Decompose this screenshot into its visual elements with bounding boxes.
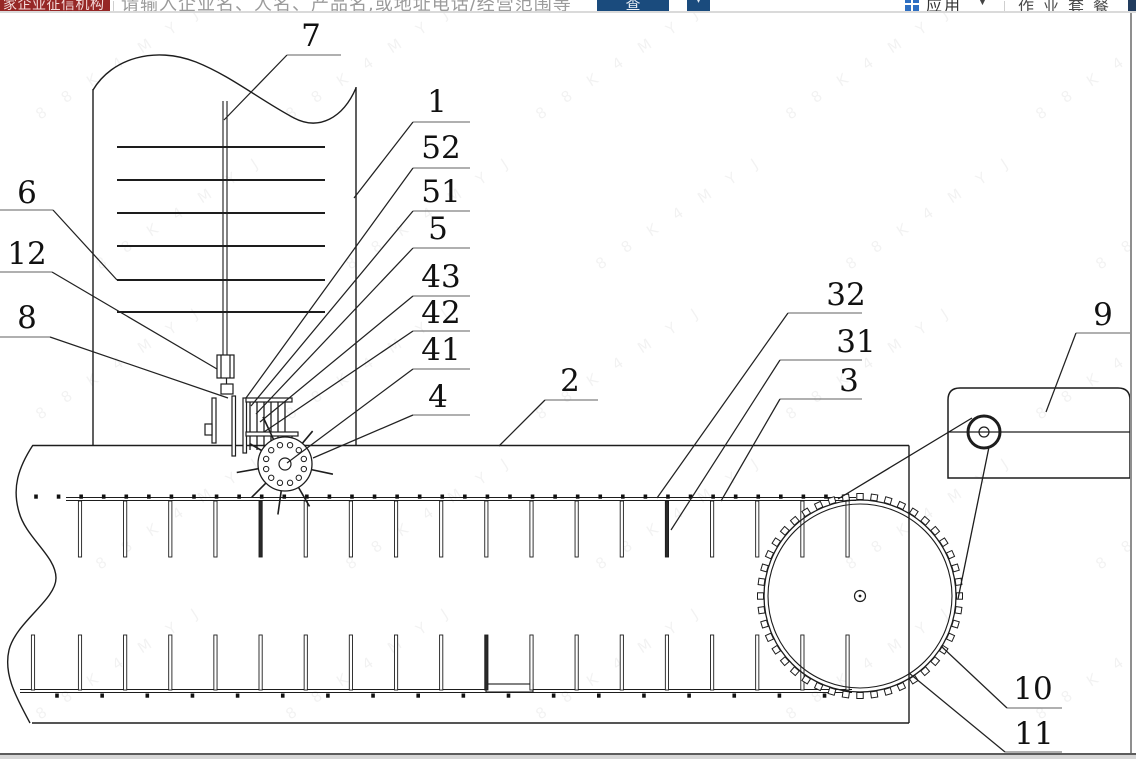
part-number: 41 bbox=[421, 332, 460, 368]
flight-bottom bbox=[349, 635, 352, 690]
chain-pin bbox=[552, 694, 556, 698]
label-leader-line bbox=[53, 210, 117, 280]
sprocket-tooth bbox=[931, 526, 940, 535]
sprocket-tooth bbox=[828, 497, 836, 505]
wheel-hole bbox=[287, 442, 292, 447]
chain-pin bbox=[553, 495, 557, 499]
apps-caret-icon: ▼ bbox=[979, 0, 986, 7]
flight-bottom bbox=[31, 635, 34, 690]
window-right-edge bbox=[1130, 13, 1132, 753]
part-number: 3 bbox=[839, 363, 859, 399]
chain-pin bbox=[507, 694, 511, 698]
sprocket-tooth bbox=[931, 657, 940, 666]
gate-plate-b bbox=[243, 398, 247, 453]
sprocket-tooth bbox=[871, 494, 878, 501]
search-button[interactable]: 查 bbox=[597, 0, 669, 11]
chain-pin bbox=[778, 694, 782, 698]
flight-top bbox=[124, 501, 127, 557]
watermark-text: 8 8 K 4 M Y J bbox=[1032, 301, 1136, 424]
chain-pin bbox=[191, 694, 195, 698]
chain-pin bbox=[373, 495, 377, 499]
flight-bottom bbox=[394, 635, 397, 690]
gate-plate-a bbox=[232, 396, 236, 456]
label-leader-line bbox=[657, 313, 788, 498]
flight-bottom bbox=[259, 635, 262, 690]
flight-bottom bbox=[214, 635, 217, 690]
patent-figure: 8 8 K 4 M Y J8 8 K 4 M Y J8 8 K 4 M Y J8… bbox=[0, 0, 1136, 759]
flight-bottom bbox=[485, 635, 488, 690]
flight-bottom bbox=[530, 635, 533, 690]
wheel-spike bbox=[302, 431, 312, 443]
wheel-spike bbox=[249, 444, 261, 451]
sprocket-tooth bbox=[857, 494, 863, 500]
sprocket-hub-dot bbox=[859, 595, 862, 598]
chain-pin bbox=[823, 694, 827, 698]
chain-pin bbox=[215, 495, 219, 499]
flight-top bbox=[485, 501, 488, 557]
sprocket-tooth bbox=[790, 516, 799, 525]
search-option-button[interactable]: ▾ bbox=[687, 0, 710, 11]
wheel-hole bbox=[296, 475, 301, 480]
watermark-text: 8 8 K 4 M Y J bbox=[32, 1, 208, 124]
part-number: 7 bbox=[301, 18, 321, 54]
toolbar-underline bbox=[0, 11, 1136, 13]
label-leader-line bbox=[909, 673, 1005, 752]
label-leader-line bbox=[499, 400, 545, 446]
belt-splice-plate bbox=[486, 684, 533, 692]
chain-pin bbox=[236, 694, 240, 698]
chain-pin bbox=[34, 495, 38, 499]
part-label-7: 7 bbox=[224, 18, 341, 120]
chain-pin bbox=[395, 495, 399, 499]
watermark-text: 8 8 K 4 M Y J bbox=[592, 151, 768, 274]
flight-bottom bbox=[756, 635, 759, 690]
wheel-hole bbox=[277, 442, 282, 447]
flight-top bbox=[665, 501, 668, 557]
chain-pin bbox=[644, 495, 648, 499]
sprocket-tooth bbox=[780, 526, 789, 535]
watermark-text: 8 8 K 4 M Y J bbox=[32, 601, 208, 724]
watermark-text: 8 8 K 4 M Y J bbox=[842, 151, 1018, 274]
part-number: 42 bbox=[421, 295, 460, 331]
chain-pin bbox=[531, 495, 535, 499]
wheel-hole bbox=[301, 466, 306, 471]
window-bottom-pad bbox=[0, 755, 1136, 759]
part-number: 1 bbox=[427, 84, 447, 120]
chain-pin bbox=[756, 495, 760, 499]
part-number: 2 bbox=[560, 363, 580, 399]
part-number: 8 bbox=[17, 300, 37, 336]
search-input[interactable]: 请输入企业名、人名、产品名,或地址电话/经营范围等 bbox=[121, 0, 572, 11]
flight-top bbox=[711, 501, 714, 557]
watermark-text: 8 8 K 4 M Y J bbox=[342, 451, 518, 574]
flight-top bbox=[169, 501, 172, 557]
drive-chain bbox=[958, 447, 989, 599]
part-number: 12 bbox=[7, 236, 46, 272]
sprocket-tooth bbox=[790, 667, 799, 676]
chain-pin bbox=[281, 694, 285, 698]
part-number: 51 bbox=[421, 174, 460, 210]
gate-knob bbox=[205, 424, 212, 435]
sprocket-tooth bbox=[780, 657, 789, 666]
flight-top bbox=[440, 501, 443, 557]
toolbar-divider bbox=[113, 1, 114, 11]
flight-top bbox=[394, 501, 397, 557]
chain-pin bbox=[282, 495, 286, 499]
flight-bottom bbox=[304, 635, 307, 690]
sprocket-tooth bbox=[857, 693, 863, 699]
gate-block-12 bbox=[217, 355, 234, 378]
shaft-coupling bbox=[221, 384, 233, 394]
chain-pin bbox=[55, 694, 59, 698]
sprocket-tooth bbox=[955, 607, 962, 614]
chain-pin bbox=[732, 694, 736, 698]
flight-top bbox=[756, 501, 759, 557]
flight-top bbox=[530, 501, 533, 557]
flight-bottom bbox=[169, 635, 172, 690]
watermark-text: 8 8 K 4 M Y J bbox=[1032, 1, 1136, 124]
wheel-hole bbox=[263, 456, 268, 461]
wheel-hole bbox=[263, 466, 268, 471]
wheel-spike bbox=[278, 491, 281, 515]
sprocket-tooth bbox=[758, 578, 765, 585]
chain-pin bbox=[418, 495, 422, 499]
chain-pin bbox=[350, 495, 354, 499]
flight-top bbox=[620, 501, 623, 557]
motor-unit bbox=[838, 388, 1130, 599]
sprocket-tooth bbox=[952, 620, 960, 628]
chain-pin bbox=[328, 495, 332, 499]
chain-pin bbox=[237, 495, 241, 499]
chain-pin bbox=[102, 495, 106, 499]
chain-pin bbox=[486, 495, 490, 499]
flight-top bbox=[259, 501, 262, 557]
flight-bottom bbox=[124, 635, 127, 690]
site-badge-label: 家企业征信机构 bbox=[3, 0, 105, 11]
flight-top bbox=[846, 501, 849, 557]
flight-top bbox=[304, 501, 307, 557]
label-leader-line bbox=[313, 415, 413, 458]
watermark-text: 8 8 K 4 M Y J bbox=[532, 301, 708, 424]
watermark-text: 8 8 K 4 M Y J bbox=[92, 151, 268, 274]
part-number: 32 bbox=[826, 277, 865, 313]
label-leader-line bbox=[941, 646, 1007, 708]
wheel-hole bbox=[301, 456, 306, 461]
flight-top bbox=[214, 501, 217, 557]
chain-pin bbox=[463, 495, 467, 499]
chain-pin bbox=[100, 694, 104, 698]
chain-pin bbox=[147, 495, 151, 499]
toolbar-corner bbox=[1128, 0, 1136, 11]
toolbar-divider bbox=[1004, 1, 1005, 11]
chain-pin bbox=[170, 495, 174, 499]
part-number: 9 bbox=[1093, 297, 1113, 333]
chain-pin bbox=[146, 694, 150, 698]
search-option-caret-icon: ▾ bbox=[696, 0, 701, 6]
part-number: 4 bbox=[428, 379, 448, 415]
sprocket-tooth bbox=[761, 620, 769, 628]
part-number: 31 bbox=[836, 324, 875, 360]
chain-pin bbox=[124, 495, 128, 499]
apps-menu[interactable]: 应用 bbox=[926, 0, 962, 11]
sprocket-tooth bbox=[842, 691, 849, 698]
chain-pin bbox=[734, 495, 738, 499]
apps-grid-icon[interactable] bbox=[905, 0, 920, 11]
chain-pin bbox=[326, 694, 330, 698]
motor-housing bbox=[948, 388, 1130, 478]
sprocket-tooth bbox=[758, 607, 765, 614]
wheel-hole bbox=[287, 480, 292, 485]
flight-bottom bbox=[846, 635, 849, 690]
wheel-hole bbox=[277, 480, 282, 485]
part-number: 11 bbox=[1014, 716, 1053, 752]
watermark-text: 8 8 K 4 M Y J bbox=[532, 1, 708, 124]
sprocket-tooth bbox=[952, 564, 960, 572]
search-button-label: 查 bbox=[625, 0, 640, 11]
flight-top bbox=[801, 501, 804, 557]
chain-pin bbox=[687, 694, 691, 698]
flight-bottom bbox=[665, 635, 668, 690]
sprocket-tooth bbox=[828, 688, 836, 696]
sprocket-tooth bbox=[884, 688, 892, 696]
chain-pin bbox=[576, 495, 580, 499]
label-leader-line bbox=[354, 122, 413, 198]
part-number: 10 bbox=[1013, 671, 1052, 707]
gate-bracket bbox=[212, 398, 216, 443]
watermark-text: 8 8 K 4 M Y J bbox=[782, 301, 958, 424]
part-number: 43 bbox=[421, 259, 460, 295]
label-leader-line bbox=[721, 399, 780, 501]
part-number: 6 bbox=[17, 175, 37, 211]
chain-pin bbox=[79, 495, 83, 499]
sprocket-tooth bbox=[758, 593, 764, 599]
flight-bottom bbox=[620, 635, 623, 690]
chain-pin bbox=[260, 495, 264, 499]
browser-toolbar: 家企业征信机构 请输入企业名、人名、产品名,或地址电话/经营范围等 查 ▾ 应用… bbox=[0, 0, 1136, 11]
watermark-text: 8 8 K 4 M Y J bbox=[282, 601, 458, 724]
watermark-text: 8 8 K 4 M Y J bbox=[92, 451, 268, 574]
flight-top bbox=[575, 501, 578, 557]
sprocket-tooth bbox=[921, 667, 930, 676]
chain-pin bbox=[508, 495, 512, 499]
chain-pin bbox=[779, 495, 783, 499]
flight-bottom bbox=[440, 635, 443, 690]
flight-bottom bbox=[711, 635, 714, 690]
chain-pin bbox=[711, 495, 715, 499]
watermark-text: 8 8 K 4 M Y J bbox=[592, 451, 768, 574]
flight-bottom bbox=[575, 635, 578, 690]
label-leader-line bbox=[224, 55, 287, 120]
chain-pin bbox=[802, 495, 806, 499]
chain-pin bbox=[416, 694, 420, 698]
part-number: 52 bbox=[421, 130, 460, 166]
site-badge: 家企业征信机构 bbox=[0, 0, 110, 11]
wheel-hole bbox=[269, 475, 274, 480]
wheel-spike bbox=[311, 470, 333, 475]
sprocket-tooth bbox=[884, 497, 892, 505]
watermark-text: 8 8 K 4 M Y J bbox=[842, 451, 1018, 574]
part-number: 5 bbox=[428, 211, 448, 247]
chain-pin bbox=[666, 495, 670, 499]
chain-pin bbox=[371, 694, 375, 698]
sprocket-tooth bbox=[761, 564, 769, 572]
chain-pin bbox=[824, 495, 828, 499]
chain-pin bbox=[462, 694, 466, 698]
chain-pin bbox=[440, 495, 444, 499]
chain-pin bbox=[621, 495, 625, 499]
wheel-spike bbox=[252, 483, 266, 497]
package-link[interactable]: 作业套餐 bbox=[1018, 0, 1118, 11]
chain-pin bbox=[598, 495, 602, 499]
watermark-text: 8 8 K 4 M Y J bbox=[32, 301, 208, 424]
part-label-10: 10 bbox=[941, 646, 1062, 708]
flight-top bbox=[78, 501, 81, 557]
chain-pin bbox=[57, 495, 61, 499]
wheel-rim bbox=[258, 437, 312, 491]
sprocket-tooth bbox=[871, 691, 878, 698]
chain-pin bbox=[192, 495, 196, 499]
wheel-hole bbox=[269, 448, 274, 453]
label-leader-line bbox=[246, 168, 413, 398]
watermark-layer: 8 8 K 4 M Y J8 8 K 4 M Y J8 8 K 4 M Y J8… bbox=[32, 1, 1136, 724]
chain-pin bbox=[642, 694, 646, 698]
flight-top bbox=[349, 501, 352, 557]
chain-pin bbox=[597, 694, 601, 698]
watermark-text: 8 8 K 4 M Y J bbox=[782, 1, 958, 124]
flight-bottom bbox=[78, 635, 81, 690]
